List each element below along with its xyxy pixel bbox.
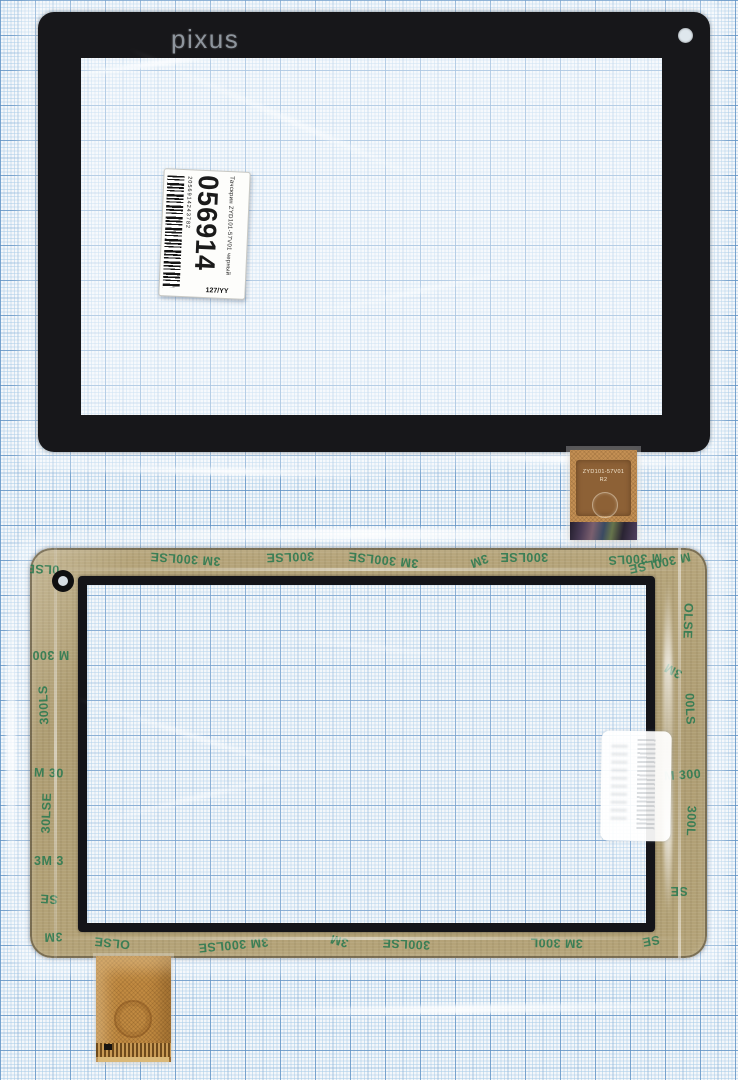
plastic-wrap-streak <box>20 464 440 478</box>
pixus-brand-logo: pixus <box>171 24 239 55</box>
tape-mark-text: OLSE <box>680 603 695 640</box>
connector-end-strip <box>98 1057 169 1062</box>
label-big-number: 056914 <box>189 174 222 293</box>
barcode-label: 2056914243782 056914 Тачскрин ZYD101-57V… <box>158 168 251 300</box>
tape-mark-text: 300LS <box>36 685 51 725</box>
flex-connector <box>570 522 637 540</box>
tape-seam <box>30 568 707 571</box>
graph-paper-background: pixus 2056914243782 056914 Тачскрин ZYD1… <box>0 0 738 1080</box>
flex-model-line2: R2 <box>600 477 608 483</box>
tape-mark-text: 30LSE <box>39 792 54 833</box>
flex-cable-top: ZYD101-57V01 R2 <box>570 450 637 540</box>
camera-hole-icon <box>678 28 693 43</box>
tape-seam <box>54 548 57 958</box>
qc-stamp-icon <box>114 1000 152 1038</box>
digitizer-front-panel: pixus 2056914243782 056914 Тачскрин ZYD1… <box>38 12 710 452</box>
flex-cable-bottom <box>96 956 171 1062</box>
tape-mark-text: 3M 3 <box>34 854 64 868</box>
digitizer-back-panel: 3M 300LSE300LSE3M 300LSE3M300LSEM 300LS0… <box>30 548 707 958</box>
label-backside-ghost-print <box>610 745 627 825</box>
label-backside <box>600 731 672 842</box>
qc-stamp-icon <box>592 492 618 518</box>
tape-mark-text: M 300 <box>32 648 69 662</box>
tape-seam <box>678 548 681 958</box>
flex-adhesive-patch: ZYD101-57V01 R2 <box>576 460 631 516</box>
label-backside-ghost-print <box>636 739 655 831</box>
tape-mark-text: 00LS <box>682 693 697 725</box>
tape-mark-text: M 30 <box>34 765 64 780</box>
camera-hole-back-icon <box>52 570 74 592</box>
tape-mark-text: SE <box>641 933 661 950</box>
tape-mark-text: 300L <box>684 806 699 837</box>
glass-window-back <box>78 576 655 932</box>
tape-mark-text: 3M 300LSE <box>150 550 221 569</box>
tape-mark-text: 3M <box>662 661 685 682</box>
tape-mark-text: 300LSE <box>500 550 548 564</box>
glass-haze <box>87 585 646 923</box>
tape-mark-text: 3M <box>328 932 350 951</box>
tape-seam <box>30 937 707 940</box>
label-batch-code: 127/YY <box>205 287 228 295</box>
tape-mark-text: 300LSE <box>266 549 315 565</box>
plastic-wrap-streak <box>190 1000 730 1018</box>
flex-model-line1: ZYD101-57V01 <box>583 469 625 475</box>
plastic-wrap-streak <box>6 560 16 940</box>
flex-model-text: ZYD101-57V01 R2 <box>576 468 631 485</box>
connector-chip <box>104 1044 112 1050</box>
